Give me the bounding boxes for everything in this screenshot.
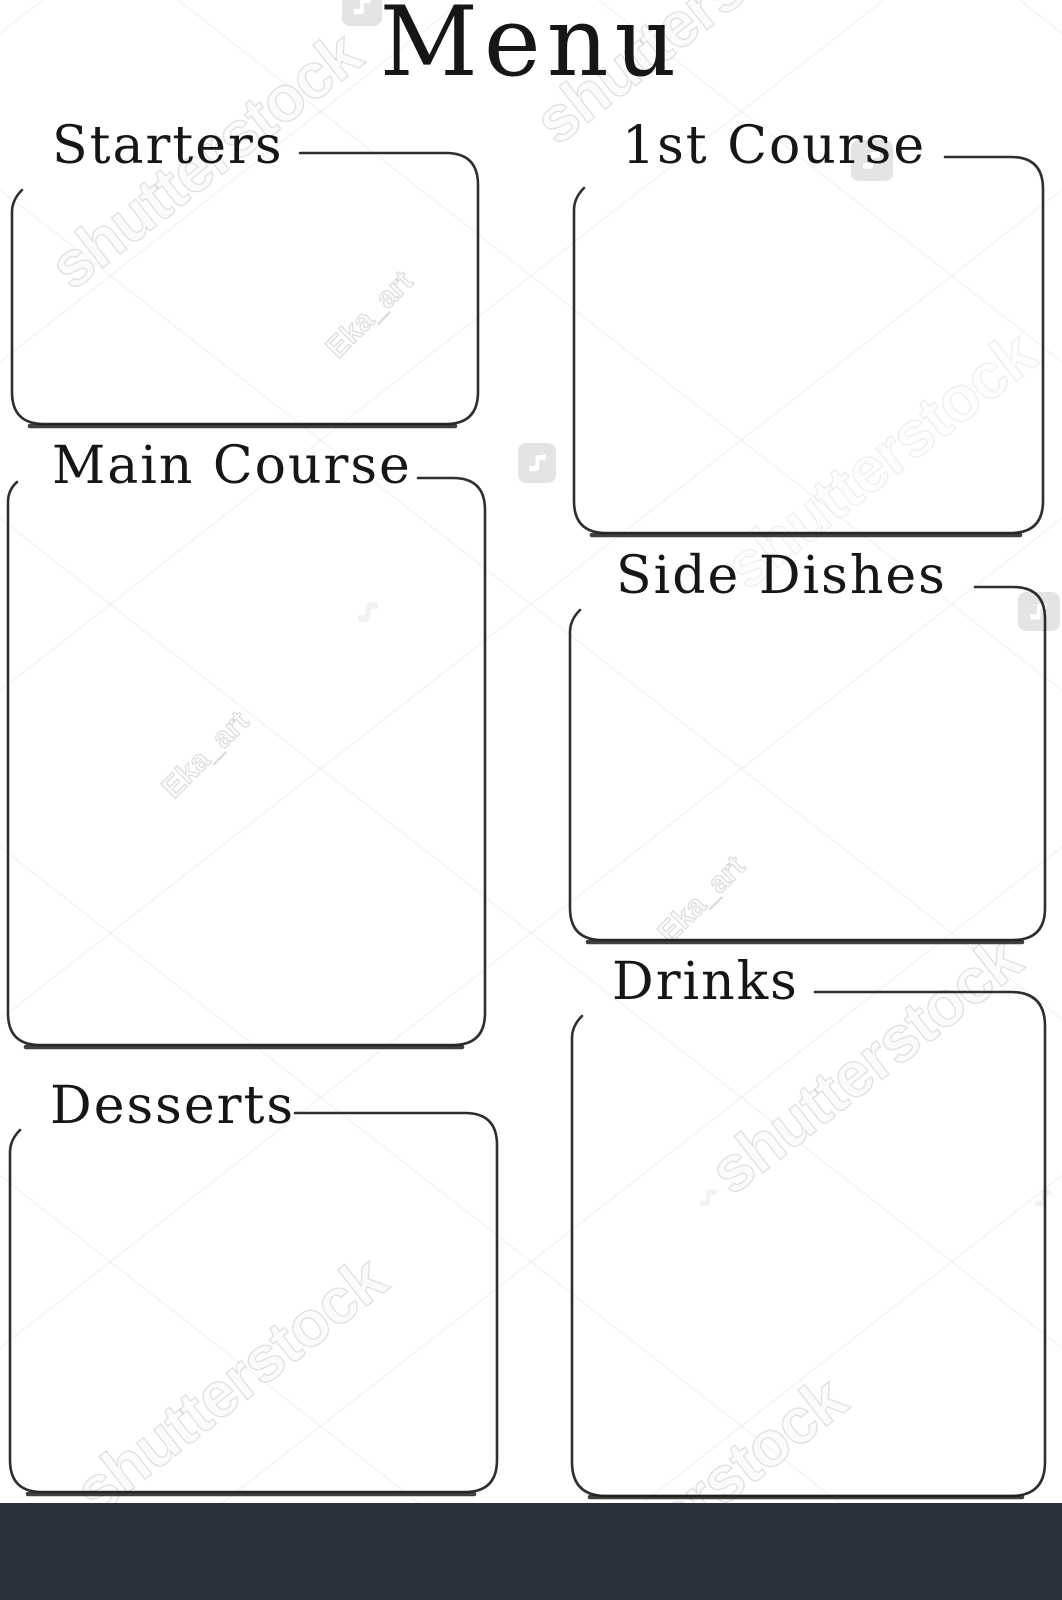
shutterstock-watermark: shutterstock	[61, 1241, 400, 1528]
shutterstock-mark-icon	[1026, 600, 1051, 623]
section-title-main-course: Main Course	[52, 440, 412, 492]
section-title-starters: Starters	[52, 120, 284, 172]
page-title: Menu	[0, 0, 1062, 90]
shutterstock-mark-ghost-icon	[697, 1186, 719, 1208]
first-course-box-border	[574, 157, 1043, 533]
starters-box-border	[12, 153, 478, 424]
section-title-drinks: Drinks	[612, 956, 799, 1008]
shutterstock-mark-icon	[526, 451, 549, 475]
menu-section-boxes	[0, 0, 1062, 1503]
artist-watermark: Eka_art	[156, 705, 257, 806]
stock-image-preview: shutterstock shutterstock shutterstock s…	[0, 0, 1062, 1600]
shutterstock-footer-bar: shutterst ck ® IMAGE ID: 1541565179 www.…	[0, 1503, 1062, 1600]
side-dishes-box-border	[570, 587, 1045, 940]
shutterstock-badge-icon	[518, 443, 556, 483]
artist-watermark: Eka_art	[652, 850, 753, 951]
shutterstock-mark-ghost-icon	[1032, 1186, 1054, 1208]
watermark-lattice-lines	[0, 0, 1062, 1503]
section-title-side-dishes: Side Dishes	[616, 550, 947, 602]
artist-watermark: Eka_art	[320, 265, 421, 366]
shutterstock-mark-ghost-icon	[355, 598, 381, 624]
desserts-box-border	[10, 1113, 497, 1492]
drinks-box-border	[572, 992, 1045, 1496]
main-course-box-border	[8, 478, 485, 1045]
section-title-first-course: 1st Course	[622, 120, 926, 172]
shutterstock-badge-icon	[1018, 592, 1060, 631]
section-title-desserts: Desserts	[50, 1080, 295, 1132]
